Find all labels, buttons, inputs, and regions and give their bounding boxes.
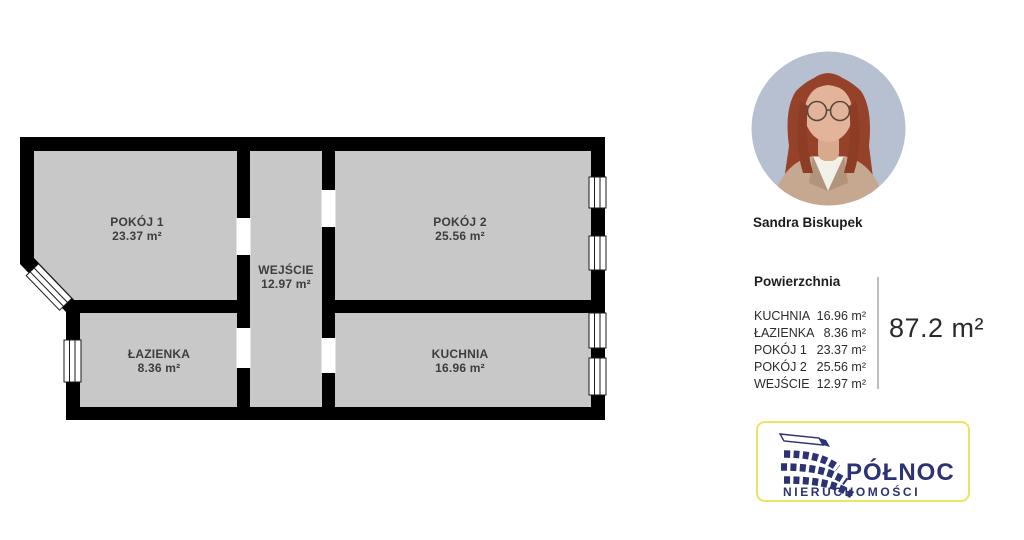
room-label-lazienka: ŁAZIENKA 8.36 m² [79, 347, 239, 375]
door-pokoj2 [322, 190, 336, 227]
window-pokoj2-b [589, 236, 606, 270]
listing-flyer: { "floorplan": { "rooms": [ {"name": "PO… [0, 0, 1024, 540]
room-area: 8.36 m² [79, 361, 239, 375]
area-panel-title: Powierzchnia [754, 274, 840, 289]
room-area: 25.56 m² [380, 229, 540, 243]
window-kuchnia-a [589, 313, 606, 348]
mid-wall-right [335, 300, 591, 313]
room-area: 23.37 m² [57, 229, 217, 243]
panel-divider [877, 277, 879, 389]
logo-needle-icon [780, 434, 823, 445]
logo-name: PÓŁNOC [846, 459, 955, 487]
agent-name: Sandra Biskupek [753, 215, 863, 230]
area-row-label: WEJŚCIE [754, 377, 810, 391]
area-row-wejscie: WEJŚCIE 12.97 m² [754, 376, 866, 393]
room-name: POKÓJ 1 [57, 215, 217, 229]
agent-photo [751, 51, 906, 206]
room-label-kuchnia: KUCHNIA 16.96 m² [380, 347, 540, 375]
area-row-value: 16.96 m² [817, 309, 866, 323]
area-row-pokoj2: POKÓJ 2 25.56 m² [754, 359, 866, 376]
door-pokoj1 [237, 218, 251, 255]
area-row-lazienka: ŁAZIENKA 8.36 m² [754, 324, 866, 341]
agency-logo: PÓŁNOC NIERUCHOMOŚCI [756, 421, 970, 502]
total-area: 87.2 m² [889, 313, 984, 344]
room-name: ŁAZIENKA [79, 347, 239, 361]
room-label-pokoj2: POKÓJ 2 25.56 m² [380, 215, 540, 243]
area-row-value: 8.36 m² [824, 326, 866, 340]
area-row-pokoj1: POKÓJ 1 23.37 m² [754, 341, 866, 358]
window-pokoj2-a [589, 177, 606, 208]
room-name: KUCHNIA [380, 347, 540, 361]
room-name: POKÓJ 2 [380, 215, 540, 229]
room-name: WEJŚCIE [236, 263, 336, 277]
area-row-label: ŁAZIENKA [754, 326, 814, 340]
room-area: 12.97 m² [236, 277, 336, 291]
face [805, 84, 853, 142]
area-row-label: POKÓJ 2 [754, 360, 807, 374]
area-row-kuchnia: KUCHNIA 16.96 m² [754, 307, 866, 324]
area-row-value: 25.56 m² [817, 360, 866, 374]
room-label-wejscie: WEJŚCIE 12.97 m² [236, 263, 336, 291]
mid-wall-left [74, 300, 237, 313]
area-table: KUCHNIA 16.96 m² ŁAZIENKA 8.36 m² POKÓJ … [754, 307, 866, 393]
room-label-pokoj1: POKÓJ 1 23.37 m² [57, 215, 217, 243]
area-row-label: POKÓJ 1 [754, 343, 807, 357]
door-kuchnia [322, 338, 336, 373]
area-row-value: 12.97 m² [817, 377, 866, 391]
area-row-value: 23.37 m² [817, 343, 866, 357]
logo-subname: NIERUCHOMOŚCI [783, 485, 920, 499]
window-kuchnia-b [589, 358, 606, 395]
area-row-label: KUCHNIA [754, 309, 810, 323]
room-area: 16.96 m² [380, 361, 540, 375]
